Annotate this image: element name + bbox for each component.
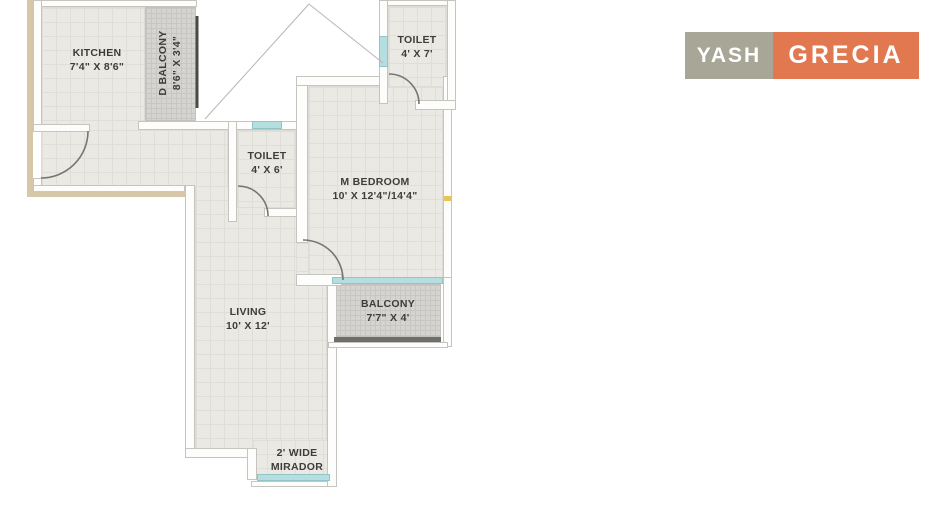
window-mirador — [257, 474, 330, 481]
dry-balcony-label: D BALCONY 8'6" X 3'4" — [156, 11, 184, 115]
balcony-label: BALCONY 7'7" X 4' — [335, 297, 441, 325]
window-toilet-mid — [252, 121, 282, 129]
logo-brand-text: YASH — [685, 32, 773, 79]
living-dims: 10' X 12' — [190, 319, 306, 333]
toilet-top-label: TOILET 4' X 7' — [380, 33, 454, 61]
wall-kitchen-top — [33, 0, 197, 7]
window-balcony — [332, 277, 443, 284]
bedroom-door-gap-floor — [296, 243, 308, 274]
wall-toilet-top-top — [379, 0, 456, 6]
toilet-mid-name: TOILET — [230, 149, 304, 163]
mirador-label: 2' WIDE MIRADOR — [258, 446, 336, 474]
floor-plan-page: KITCHEN 7'4" X 8'6" D BALCONY 8'6" X 3'4… — [0, 0, 945, 525]
entry-corridor-floor — [41, 130, 228, 187]
wall-balcony-outer — [328, 342, 448, 348]
toilet-top-name: TOILET — [380, 33, 454, 47]
balcony-edge-line — [334, 337, 441, 342]
wall-mirador-step — [247, 448, 257, 480]
wall-mirador-outer — [251, 481, 337, 487]
bedroom-label: M BEDROOM 10' X 12'4"/14'4" — [300, 175, 450, 203]
bedroom-dims: 10' X 12'4"/14'4" — [300, 189, 450, 203]
wall-bedroom-top — [296, 76, 387, 86]
logo-product-text: GRECIA — [773, 32, 919, 79]
living-label: LIVING 10' X 12' — [190, 305, 306, 333]
project-logo: YASH GRECIA — [685, 32, 919, 79]
kitchen-dims: 7'4" X 8'6" — [37, 60, 157, 74]
diagonal-line-left — [205, 4, 309, 119]
kitchen-label: KITCHEN 7'4" X 8'6" — [37, 46, 157, 74]
mirador-name: 2' WIDE — [258, 446, 336, 460]
balcony-dims: 7'7" X 4' — [335, 311, 441, 325]
wall-balcony-right — [443, 277, 452, 347]
bedroom-name: M BEDROOM — [300, 175, 450, 189]
wall-toilet-top-bottom — [415, 100, 456, 110]
wall-entry-stub — [33, 124, 90, 132]
toilet-mid-dims: 4' X 6' — [230, 163, 304, 177]
balcony-name: BALCONY — [335, 297, 441, 311]
outer-wall-bottom — [27, 191, 186, 197]
toilet-mid-label: TOILET 4' X 6' — [230, 149, 304, 177]
diagonal-line-right — [309, 4, 383, 63]
mirador-dims: MIRADOR — [258, 460, 336, 474]
toilet-top-dims: 4' X 7' — [380, 47, 454, 61]
outer-wall-left — [27, 0, 33, 197]
dry-balcony-name: D BALCONY — [156, 11, 170, 115]
wall-under-dry-balcony — [138, 121, 308, 130]
kitchen-name: KITCHEN — [37, 46, 157, 60]
living-name: LIVING — [190, 305, 306, 319]
dry-balcony-dims: 8'6" X 3'4" — [170, 11, 184, 115]
